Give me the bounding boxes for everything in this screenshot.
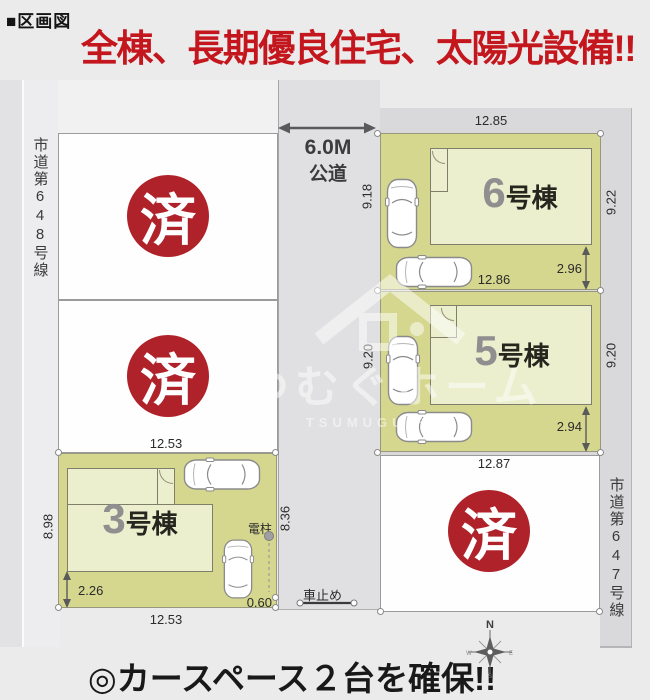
survey-point xyxy=(597,287,604,294)
unit6-suffix: 号棟 xyxy=(506,185,558,211)
right-road-name-wrap: 市道第647号線 xyxy=(600,473,632,623)
left-road-name: 市道第648号線 xyxy=(33,137,48,279)
dim-u3-left: 8.98 xyxy=(41,507,56,547)
survey-point xyxy=(374,287,381,294)
survey-point xyxy=(55,449,62,456)
left-road-name-wrap: 市道第648号線 xyxy=(22,133,58,283)
unit3-label: 3号棟 xyxy=(75,498,205,540)
section-label: ■区画図 xyxy=(6,7,71,32)
left-margin-area xyxy=(0,80,22,647)
sold-stamp-3: 済 xyxy=(448,490,530,572)
dim-u6-left: 9.18 xyxy=(360,177,375,217)
survey-point xyxy=(377,608,384,615)
survey-point xyxy=(597,130,604,137)
road-width-label: 6.0M xyxy=(288,136,368,160)
compass-north-label: N xyxy=(486,619,494,631)
unit5-label: 5号棟 xyxy=(447,330,577,372)
footer-caption: ◎カースペース２台を確保!! xyxy=(88,652,496,700)
dim-u6-right: 9.22 xyxy=(604,183,619,223)
survey-point xyxy=(374,449,381,456)
car-icon xyxy=(386,334,420,407)
survey-point xyxy=(272,594,279,601)
dim-u5-right: 9.20 xyxy=(604,336,619,376)
sold-stamp-2: 済 xyxy=(127,335,209,417)
dim-arrow-icon xyxy=(581,246,591,290)
compass-west-label: W xyxy=(466,651,472,657)
unit5-suffix: 号棟 xyxy=(498,343,550,369)
right-road-name: 市道第647号線 xyxy=(609,477,624,619)
car-icon xyxy=(182,457,262,492)
dim-u5-left: 9.20 xyxy=(361,337,376,377)
survey-point xyxy=(272,604,279,611)
survey-point xyxy=(272,449,279,456)
road-width-arrow-icon xyxy=(277,121,377,135)
dim-u6-inner: 2.96 xyxy=(536,261,582,276)
dim-u5-inner: 2.94 xyxy=(536,419,582,434)
unit3-suffix: 号棟 xyxy=(126,511,178,537)
headline: 全棟、長期優良住宅、太陽光設備!! xyxy=(70,18,646,72)
plot-map-flyer: ■区画図 全棟、長期優良住宅、太陽光設備!! 市道第648号線 市道第647号線… xyxy=(0,0,650,700)
car-stop-line-icon xyxy=(295,597,359,609)
road-type-label: 公道 xyxy=(288,159,368,186)
utility-pole-icon xyxy=(262,530,276,596)
survey-point xyxy=(55,604,62,611)
unit3-number: 3 xyxy=(102,498,125,540)
sold-stamp-1: 済 xyxy=(127,175,209,257)
dim-u3-inner: 2.26 xyxy=(78,583,124,598)
dim-u3-corner: 0.60 xyxy=(230,595,272,610)
north-open-area xyxy=(58,80,278,133)
car-icon xyxy=(222,538,254,600)
car-icon xyxy=(385,177,419,250)
dim-arrow-icon xyxy=(581,406,591,452)
compass-south-label: S xyxy=(488,674,492,678)
survey-point xyxy=(374,130,381,137)
survey-point xyxy=(597,449,604,456)
dim-u6-top: 12.85 xyxy=(451,113,531,128)
dim-u6-bottom: 12.86 xyxy=(454,272,534,287)
dim-arrow-icon xyxy=(62,571,72,608)
survey-point xyxy=(596,608,603,615)
dim-u5-bottom: 12.87 xyxy=(454,456,534,471)
dim-u3-bottom: 12.53 xyxy=(126,612,206,627)
compass-east-label: E xyxy=(509,651,513,657)
compass-icon: N W E S xyxy=(466,616,514,678)
unit5-number: 5 xyxy=(474,330,497,372)
unit6-number: 6 xyxy=(482,172,505,214)
unit6-label: 6号棟 xyxy=(455,172,585,214)
dim-u3-top: 12.53 xyxy=(126,436,206,451)
car-icon xyxy=(394,410,474,444)
